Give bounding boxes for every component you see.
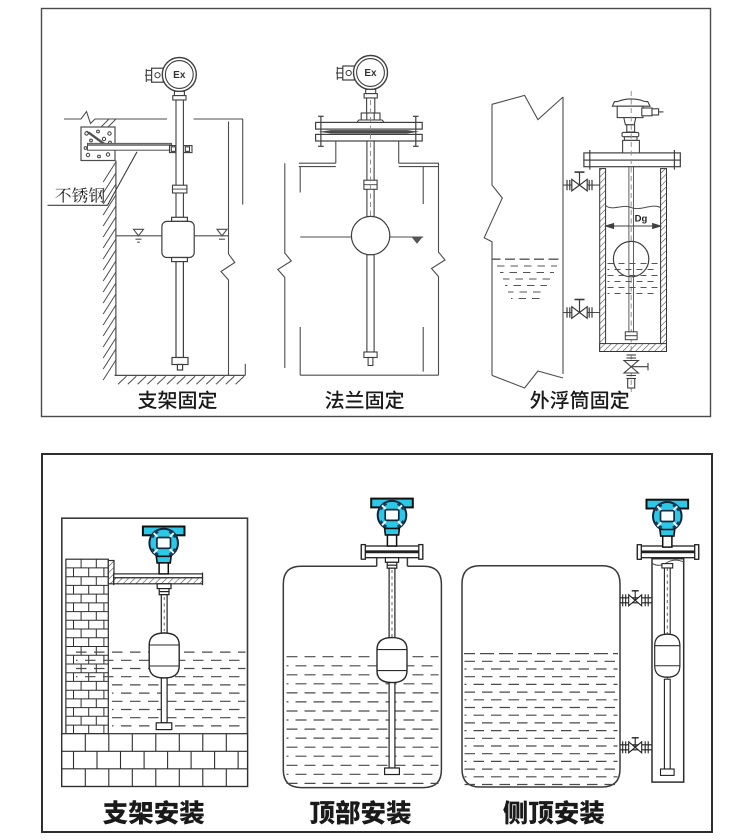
svg-text:Ex: Ex [173, 70, 186, 81]
svg-text:Dg: Dg [635, 214, 648, 225]
svg-text:Ex: Ex [364, 68, 377, 79]
